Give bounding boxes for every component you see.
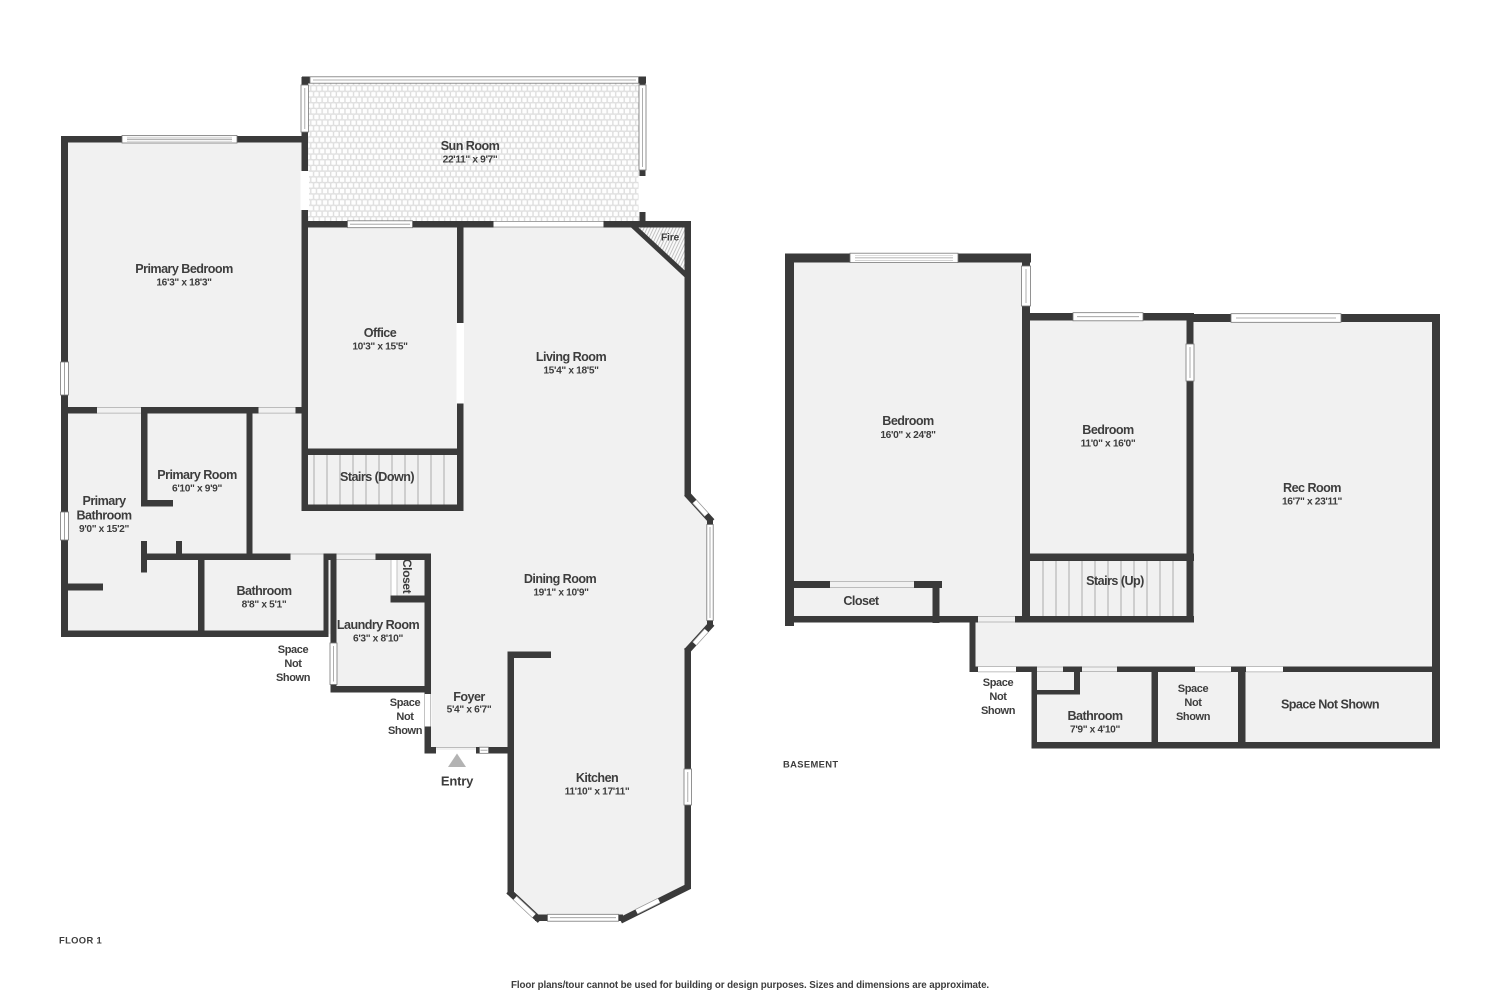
svg-text:Laundry Room: Laundry Room (337, 618, 420, 632)
svg-text:Bathroom: Bathroom (1067, 709, 1122, 723)
svg-text:Entry: Entry (441, 774, 474, 789)
svg-text:7'9" x 4'10": 7'9" x 4'10" (1070, 724, 1120, 735)
svg-text:Sun Room: Sun Room (441, 139, 500, 153)
svg-text:Dining Room: Dining Room (524, 572, 597, 586)
svg-text:Shown: Shown (388, 725, 423, 737)
svg-text:Primary: Primary (82, 494, 126, 508)
svg-text:Office: Office (364, 326, 397, 340)
svg-text:Shown: Shown (276, 672, 311, 684)
svg-text:22'11" x 9'7": 22'11" x 9'7" (443, 154, 498, 165)
svg-text:Bathroom: Bathroom (236, 584, 291, 598)
svg-text:Bathroom: Bathroom (76, 508, 131, 522)
svg-text:Not: Not (989, 691, 1007, 703)
svg-text:Closet: Closet (400, 559, 414, 594)
svg-text:Primary Bedroom: Primary Bedroom (135, 262, 233, 276)
svg-text:5'4" x 6'7": 5'4" x 6'7" (447, 704, 492, 715)
svg-text:Stairs (Down): Stairs (Down) (340, 470, 414, 484)
svg-text:16'3" x 18'3": 16'3" x 18'3" (156, 277, 212, 288)
svg-text:16'0" x 24'8": 16'0" x 24'8" (880, 430, 936, 441)
svg-text:15'4" x 18'5": 15'4" x 18'5" (543, 365, 599, 376)
svg-text:8'8" x 5'1": 8'8" x 5'1" (242, 599, 287, 610)
svg-text:Bedroom: Bedroom (882, 414, 934, 428)
svg-text:6'3" x 8'10": 6'3" x 8'10" (353, 633, 403, 644)
svg-text:Space: Space (390, 697, 421, 709)
svg-text:11'10" x 17'11": 11'10" x 17'11" (565, 786, 630, 797)
svg-text:Space: Space (983, 677, 1014, 689)
svg-text:Space: Space (278, 644, 309, 656)
svg-text:Shown: Shown (1176, 711, 1211, 723)
svg-text:19'1" x 10'9": 19'1" x 10'9" (533, 587, 589, 598)
svg-text:10'3" x 15'5": 10'3" x 15'5" (352, 341, 408, 352)
svg-text:Stairs (Up): Stairs (Up) (1086, 574, 1144, 588)
svg-text:Primary Room: Primary Room (157, 468, 237, 482)
svg-text:6'10" x 9'9": 6'10" x 9'9" (172, 483, 222, 494)
svg-text:Foyer: Foyer (453, 690, 485, 704)
svg-text:Not: Not (1184, 697, 1202, 709)
svg-text:BASEMENT: BASEMENT (783, 759, 838, 770)
svg-text:11'0" x 16'0": 11'0" x 16'0" (1081, 438, 1136, 449)
svg-text:16'7" x 23'11": 16'7" x 23'11" (1282, 496, 1343, 507)
svg-text:Rec Room: Rec Room (1283, 481, 1341, 495)
svg-text:Bedroom: Bedroom (1082, 423, 1134, 437)
svg-text:Floor plans/tour cannot be use: Floor plans/tour cannot be used for buil… (511, 980, 989, 991)
svg-text:Kitchen: Kitchen (576, 771, 618, 785)
svg-text:Space Not Shown: Space Not Shown (1281, 698, 1379, 712)
svg-text:Shown: Shown (981, 705, 1016, 717)
svg-text:FLOOR 1: FLOOR 1 (59, 935, 102, 946)
svg-text:9'0" x 15'2": 9'0" x 15'2" (79, 524, 129, 535)
svg-text:Fire: Fire (661, 233, 680, 244)
svg-text:Space: Space (1178, 683, 1209, 695)
svg-text:Closet: Closet (843, 594, 880, 608)
svg-text:Living Room: Living Room (536, 350, 607, 364)
svg-text:Not: Not (396, 711, 414, 723)
svg-text:Not: Not (284, 658, 302, 670)
